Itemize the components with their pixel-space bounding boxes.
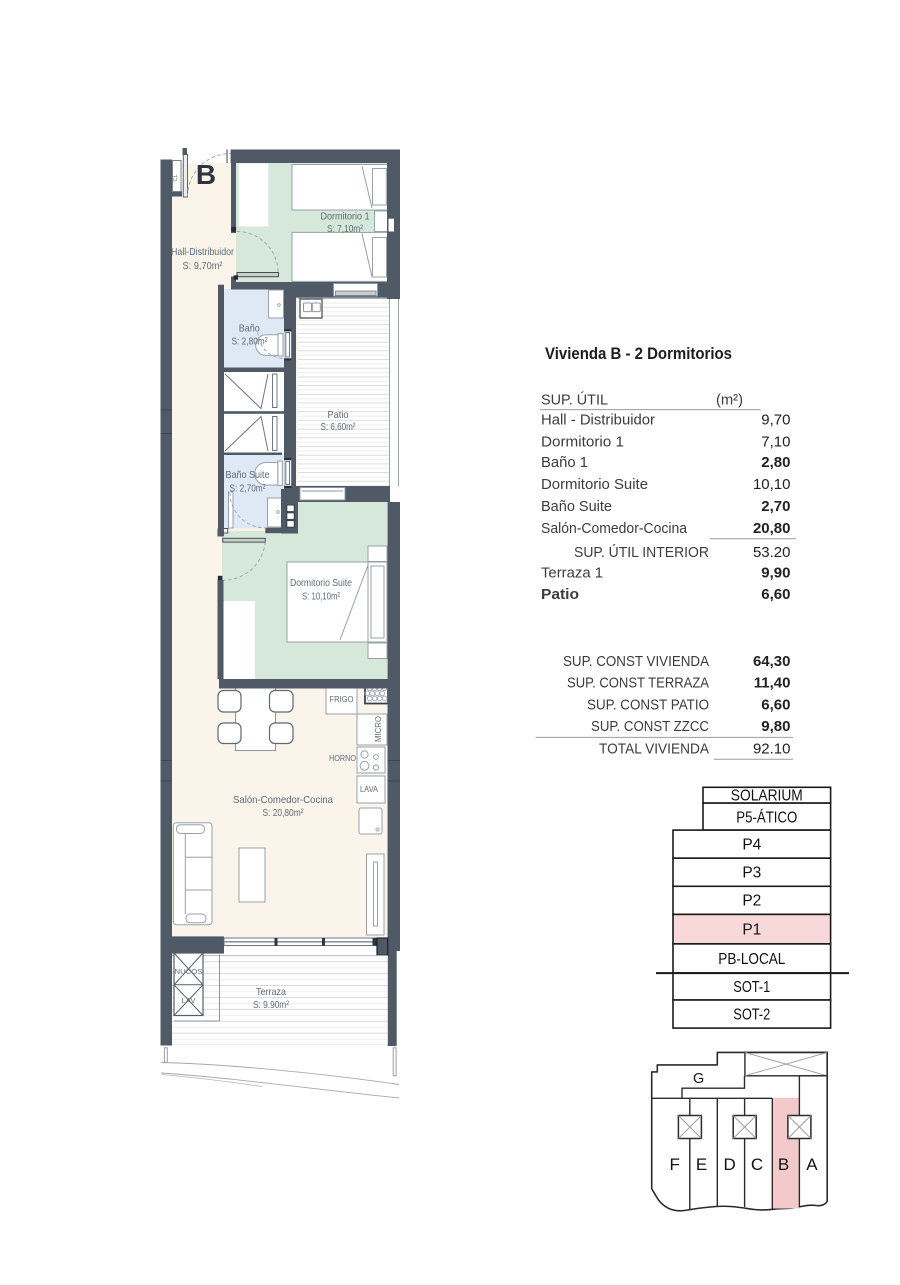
svg-text:Hall-Distribuidor: Hall-Distribuidor	[171, 246, 234, 258]
svg-text:Dormitorio 1: Dormitorio 1	[541, 434, 624, 451]
svg-text:Vivienda B - 2 Dormitorios: Vivienda B - 2 Dormitorios	[545, 344, 732, 363]
svg-text:53.20: 53.20	[753, 544, 791, 561]
svg-text:Salón-Comedor-Cocina: Salón-Comedor-Cocina	[233, 794, 333, 806]
svg-text:6,60: 6,60	[761, 586, 790, 603]
svg-text:S: 2,70m²: S: 2,70m²	[230, 483, 266, 495]
svg-text:20,80: 20,80	[753, 520, 791, 537]
svg-text:SUP. ÚTIL: SUP. ÚTIL	[541, 392, 608, 409]
svg-text:FRIGO: FRIGO	[330, 695, 354, 704]
svg-text:Terraza: Terraza	[256, 986, 286, 998]
svg-text:2,80: 2,80	[761, 454, 790, 471]
svg-text:Terraza 1: Terraza 1	[541, 564, 603, 581]
svg-text:S: 9,70m²: S: 9,70m²	[183, 260, 223, 272]
svg-text:SUP. CONST VIVIENDA: SUP. CONST VIVIENDA	[563, 653, 709, 670]
svg-text:Baño: Baño	[239, 323, 260, 335]
svg-text:S: 9.90m²: S: 9.90m²	[253, 999, 289, 1011]
svg-text:Baño Suite: Baño Suite	[226, 469, 270, 481]
svg-text:6,60: 6,60	[761, 697, 790, 714]
svg-text:Salón-Comedor-Cocina: Salón-Comedor-Cocina	[541, 520, 688, 537]
svg-text:64,30: 64,30	[753, 653, 791, 670]
svg-text:G: G	[693, 1071, 704, 1087]
svg-text:Baño Suite: Baño Suite	[541, 498, 612, 515]
svg-text:TOTAL VIVIENDA: TOTAL VIVIENDA	[599, 741, 709, 758]
svg-text:E: E	[696, 1155, 707, 1174]
svg-text:Dormitorio 1: Dormitorio 1	[321, 211, 370, 223]
svg-text:B: B	[778, 1155, 789, 1174]
svg-text:LAV: LAV	[182, 996, 196, 1005]
svg-text:9,70: 9,70	[761, 411, 790, 428]
svg-text:P4: P4	[742, 837, 761, 854]
svg-text:SUP. CONST PATIO: SUP. CONST PATIO	[587, 697, 709, 714]
svg-text:SUP. CONST TERRAZA: SUP. CONST TERRAZA	[567, 675, 709, 692]
svg-text:LAVA: LAVA	[360, 785, 379, 794]
svg-text:SOT-2: SOT-2	[733, 1007, 770, 1024]
svg-text:Baño 1: Baño 1	[541, 454, 588, 471]
svg-text:S: 2,80m²: S: 2,80m²	[232, 336, 268, 348]
svg-text:P5-ÁTICO: P5-ÁTICO	[736, 810, 797, 827]
svg-text:S: 7,10m²: S: 7,10m²	[327, 223, 363, 235]
svg-text:B: B	[196, 159, 216, 190]
svg-text:S: 6,60m²: S: 6,60m²	[321, 421, 356, 433]
svg-text:C: C	[751, 1155, 763, 1174]
svg-text:P1: P1	[742, 922, 761, 939]
svg-text:A: A	[806, 1155, 818, 1174]
svg-text:10,10: 10,10	[753, 476, 791, 493]
svg-text:2,70: 2,70	[761, 498, 790, 515]
svg-text:HORNO: HORNO	[329, 754, 356, 763]
svg-text:SUP. CONST ZZCC: SUP. CONST ZZCC	[591, 718, 709, 735]
svg-text:Patio: Patio	[541, 586, 579, 603]
svg-text:Patio: Patio	[328, 409, 349, 421]
svg-text:Dormitorio Suite: Dormitorio Suite	[290, 577, 352, 589]
svg-text:SOT-1: SOT-1	[733, 979, 770, 996]
svg-text:7,10: 7,10	[761, 434, 790, 451]
svg-text:P3: P3	[742, 865, 761, 882]
svg-text:Dormitorio Suite: Dormitorio Suite	[541, 476, 648, 493]
svg-text:(m²): (m²)	[716, 392, 743, 409]
svg-text:SOLARIUM: SOLARIUM	[731, 788, 803, 805]
svg-text:F: F	[670, 1155, 680, 1174]
svg-text:NUCOS: NUCOS	[175, 967, 203, 976]
svg-text:D: D	[723, 1155, 735, 1174]
svg-text:9,80: 9,80	[761, 718, 790, 735]
svg-text:P2: P2	[742, 893, 761, 910]
svg-text:SUP. ÚTIL INTERIOR: SUP. ÚTIL INTERIOR	[574, 544, 709, 561]
svg-text:Hall - Distribuidor: Hall - Distribuidor	[541, 411, 655, 428]
svg-text:PB-LOCAL: PB-LOCAL	[718, 951, 785, 968]
svg-text:MICRO: MICRO	[374, 716, 383, 742]
svg-text:9,90: 9,90	[761, 564, 790, 581]
svg-text:S: 10,10m²: S: 10,10m²	[302, 591, 340, 603]
svg-text:CL: CL	[173, 174, 179, 181]
svg-text:11,40: 11,40	[754, 675, 791, 692]
svg-text:S: 20,80m²: S: 20,80m²	[263, 807, 304, 819]
svg-text:92.10: 92.10	[753, 741, 791, 758]
